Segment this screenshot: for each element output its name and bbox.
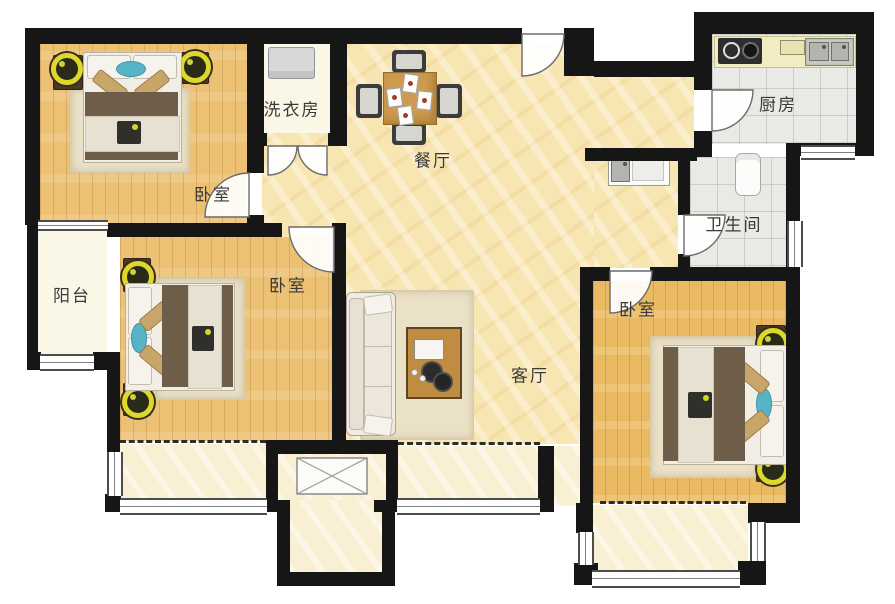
- wall: [107, 368, 120, 452]
- bedroom-bay-window: [592, 570, 740, 588]
- room-label-bathroom: 卫生间: [706, 211, 763, 236]
- wall: [694, 12, 712, 90]
- bed-tray: [688, 392, 712, 418]
- flue-shaft-icon: [296, 457, 368, 495]
- chair-icon: [356, 84, 382, 118]
- shaft-lower-floor: [290, 500, 382, 572]
- vanity-counter-line: [632, 160, 664, 181]
- bay-side-window: [107, 452, 123, 496]
- place-setting: [397, 105, 414, 126]
- bed-tray: [192, 326, 214, 351]
- room-label-bedroom-right: 卧室: [619, 296, 657, 321]
- room-label-kitchen: 厨房: [759, 91, 797, 116]
- nightstand-lamp-icon: [179, 51, 211, 83]
- wall: [738, 561, 766, 585]
- wall-pocket-floor: [554, 446, 580, 506]
- stove-burner: [723, 42, 740, 59]
- stove-burner: [742, 42, 759, 59]
- wall: [694, 12, 874, 34]
- balcony-window: [40, 354, 94, 371]
- wall: [25, 28, 522, 44]
- place-setting: [386, 87, 403, 108]
- sofa-back: [349, 298, 364, 430]
- wall: [328, 133, 347, 146]
- kitchen-appliance: [780, 40, 805, 55]
- bay-side-window: [578, 532, 594, 565]
- sofa-pillow: [363, 293, 393, 316]
- toilet-icon: [735, 153, 761, 196]
- wall: [678, 157, 690, 215]
- wall: [277, 572, 395, 586]
- dining-alcove-floor: [594, 77, 694, 148]
- washing-machine-icon: [268, 47, 315, 79]
- wall: [107, 223, 282, 237]
- chair-icon: [436, 84, 462, 118]
- wall: [564, 28, 594, 76]
- wall: [27, 225, 38, 358]
- chair-icon: [392, 122, 426, 145]
- bay-dashed-line: [398, 442, 540, 445]
- place-setting: [416, 90, 433, 110]
- wall: [332, 223, 346, 444]
- bay-front-window: [120, 498, 267, 515]
- wall: [576, 503, 593, 533]
- wall: [27, 352, 41, 370]
- wall: [650, 267, 786, 281]
- wall: [105, 494, 121, 512]
- wall: [786, 156, 800, 503]
- sofa-seat: [364, 346, 392, 388]
- living-bay-window: [397, 498, 540, 515]
- balcony-slider-window: [38, 220, 108, 231]
- bay-window-right-floor: [590, 505, 748, 571]
- bay-dashed-line: [120, 440, 266, 443]
- wall: [856, 12, 874, 156]
- kitchen-window: [801, 145, 855, 160]
- place-setting: [402, 73, 419, 94]
- wall: [594, 61, 700, 77]
- room-label-balcony: 阳台: [53, 282, 91, 307]
- wall: [266, 440, 398, 454]
- coffee-table-cup: [419, 375, 426, 382]
- wall: [580, 267, 593, 503]
- vanity-basin: [611, 159, 630, 182]
- wall: [247, 44, 264, 173]
- wall: [330, 28, 347, 133]
- sink-basin: [809, 42, 829, 61]
- room-label-dining: 餐厅: [414, 147, 452, 172]
- bay-dashed-line: [600, 501, 746, 504]
- throw-pillow: [116, 61, 146, 77]
- bay-window-living-floor: [394, 446, 540, 499]
- wall: [748, 503, 800, 523]
- sofa-pillow: [363, 414, 393, 437]
- coffee-table-tray: [414, 339, 444, 360]
- bay-side-window: [750, 522, 766, 561]
- wall: [25, 28, 40, 225]
- bathroom-window: [787, 221, 803, 267]
- bay-window-left-floor: [112, 444, 266, 499]
- wall: [538, 446, 554, 512]
- chair-icon: [392, 50, 426, 73]
- coffee-table-cup: [411, 369, 418, 376]
- floor-plan: 卧室 洗衣房 餐厅 厨房 卫生间 卧室 阳台 客厅 卧室: [0, 0, 895, 604]
- coffee-table-bowl: [433, 372, 453, 392]
- wall: [247, 133, 267, 146]
- room-label-bedroom-mid-left: 卧室: [269, 272, 307, 297]
- room-label-laundry: 洗衣房: [264, 96, 321, 121]
- room-label-bedroom-top-left: 卧室: [194, 181, 232, 206]
- nightstand-lamp-icon: [51, 53, 83, 85]
- room-label-living: 客厅: [511, 362, 549, 387]
- bed-tray: [117, 121, 141, 144]
- sink-basin: [831, 42, 849, 61]
